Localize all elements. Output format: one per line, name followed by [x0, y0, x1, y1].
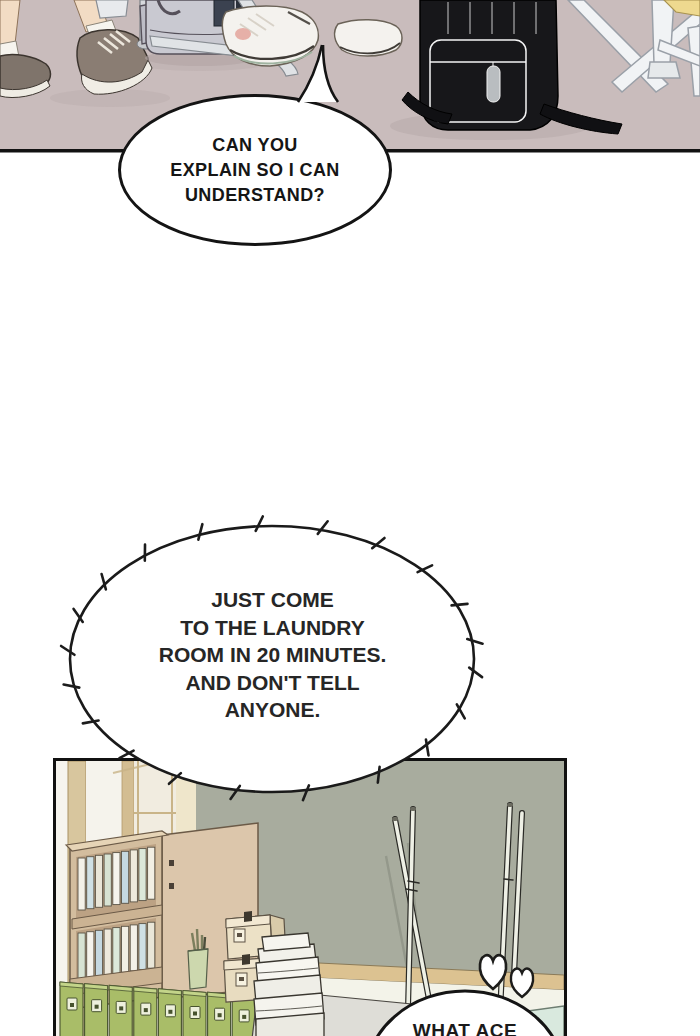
bubble2-line: AND DON'T TELL [100, 669, 445, 697]
chair-foot [96, 0, 128, 18]
bubble2-line: JUST COME [100, 586, 445, 614]
bubble3-text: WHAT ACE [413, 1020, 517, 1036]
books-top-shelf [78, 847, 155, 910]
bubble2-line: TO THE LAUNDRY [100, 614, 445, 642]
book-stack [254, 933, 324, 1036]
speech-bubble-tail [296, 44, 342, 106]
bubble1-line: UNDERSTAND? [170, 183, 339, 208]
comic-page: CAN YOU EXPLAIN SO I CAN UNDERSTAND? JUS… [0, 0, 700, 1036]
bubble2-line: ROOM IN 20 MINUTES. [100, 641, 445, 669]
bubble2-line: ANYONE. [100, 696, 445, 724]
bubble1-line: EXPLAIN SO I CAN [170, 158, 339, 183]
bubble1-line: CAN YOU [170, 133, 339, 158]
speech-bubble-1: CAN YOU EXPLAIN SO I CAN UNDERSTAND? [118, 94, 392, 246]
radio-bubble-text: JUST COME TO THE LAUNDRY ROOM IN 20 MINU… [100, 586, 445, 724]
